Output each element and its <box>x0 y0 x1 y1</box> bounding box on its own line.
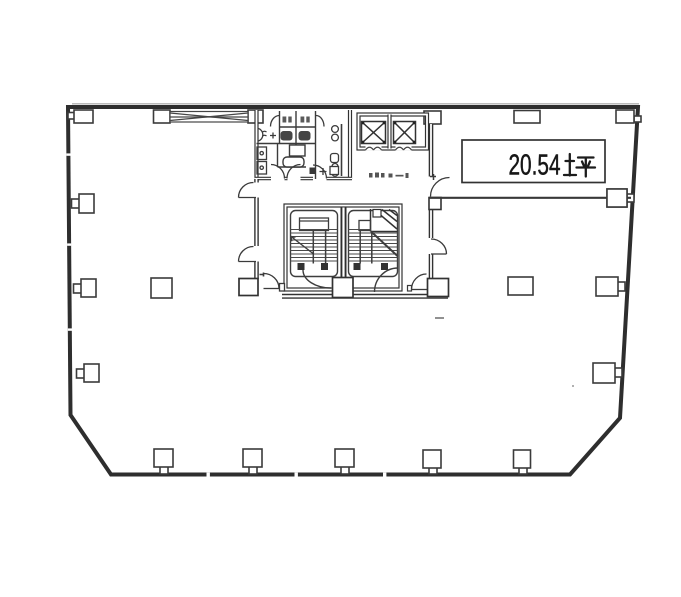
svg-text:20.54: 20.54 <box>509 150 561 182</box>
